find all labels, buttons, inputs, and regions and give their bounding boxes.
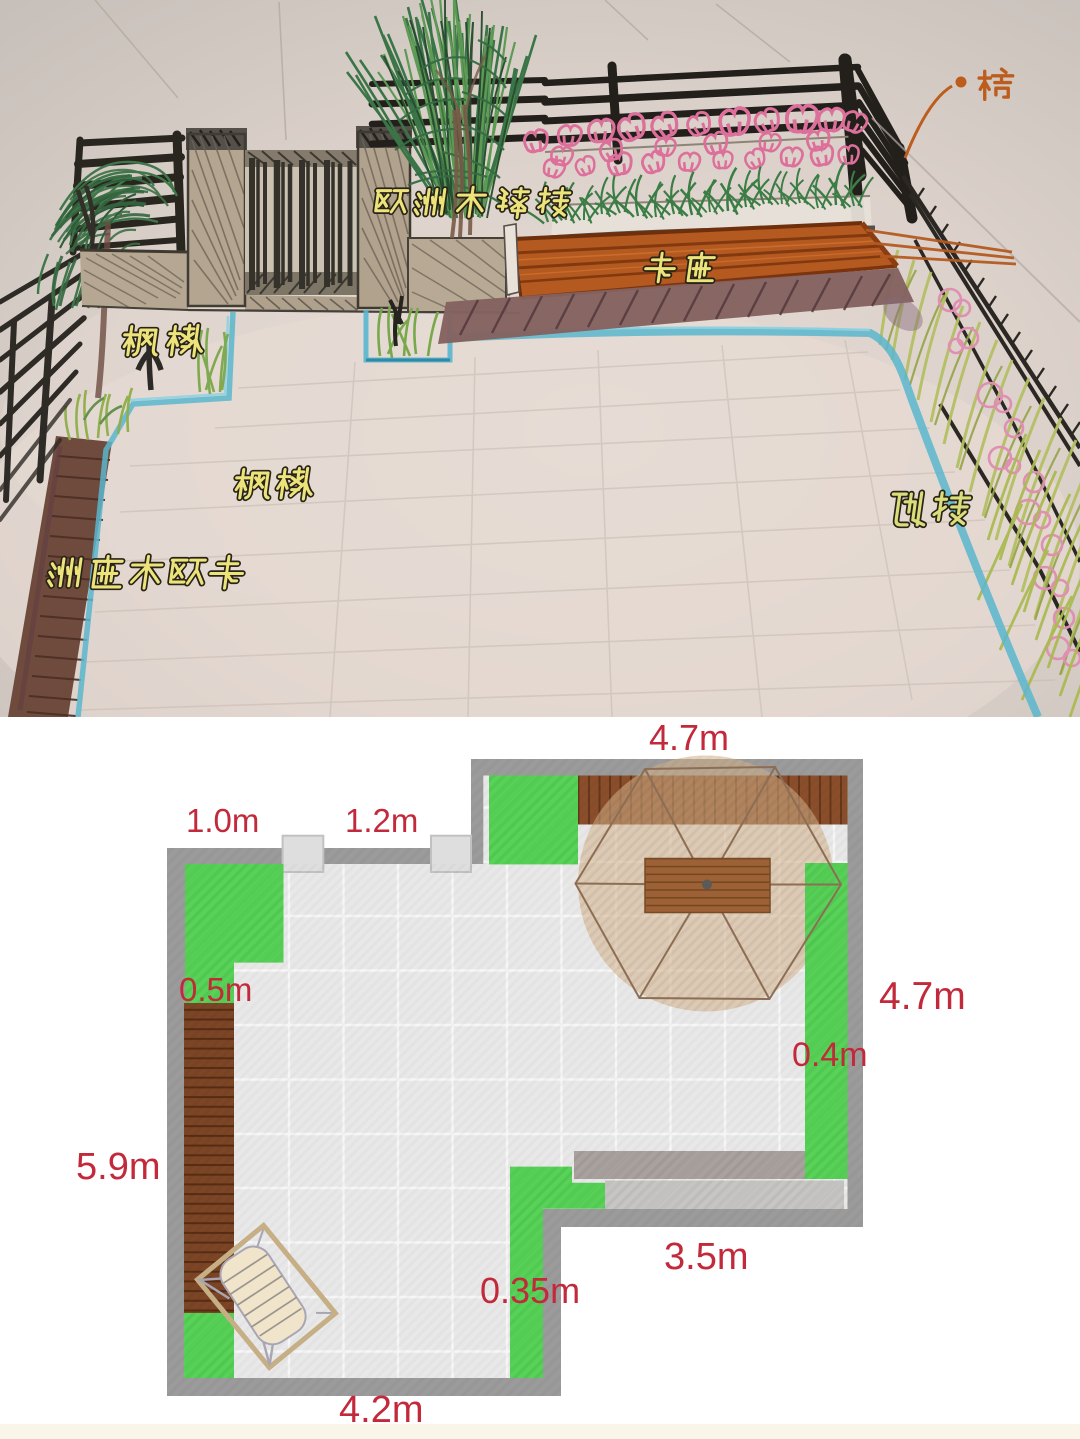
svg-text:4.7m: 4.7m: [649, 717, 729, 758]
svg-text:1.2m: 1.2m: [345, 802, 418, 839]
svg-text:4.7m: 4.7m: [879, 975, 966, 1018]
svg-text:0.5m: 0.5m: [179, 971, 252, 1008]
svg-text:1.0m: 1.0m: [186, 802, 259, 839]
svg-text:0.4m: 0.4m: [792, 1036, 868, 1074]
svg-text:0.35m: 0.35m: [480, 1270, 580, 1311]
svg-text:4.2m: 4.2m: [339, 1389, 423, 1431]
svg-text:3.5m: 3.5m: [664, 1236, 748, 1278]
svg-text:5.9m: 5.9m: [76, 1146, 160, 1188]
